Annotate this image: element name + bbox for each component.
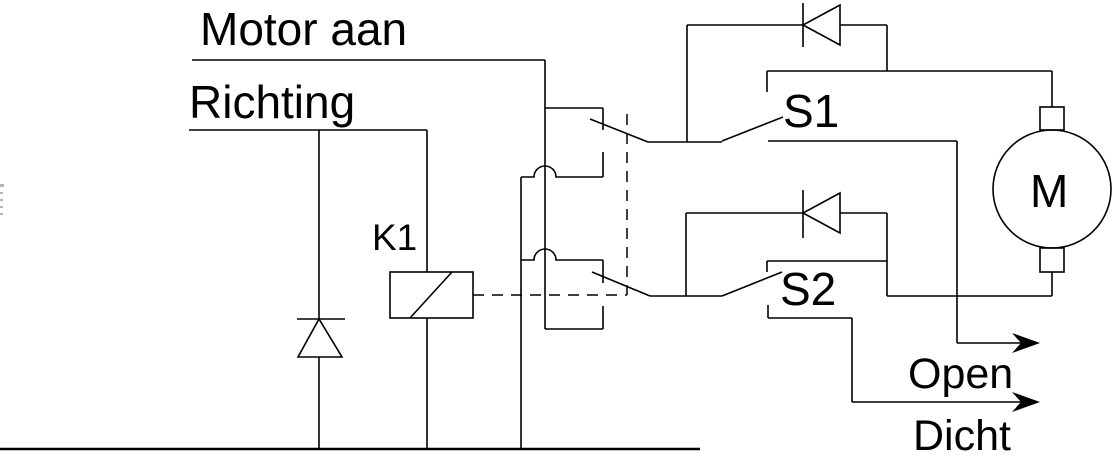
lower-contact-top-wire-hop — [521, 249, 603, 260]
motor-brush-top — [1040, 107, 1064, 130]
changeover-contact-upper — [521, 108, 722, 177]
label-k1: K1 — [372, 217, 417, 258]
label-s2: S2 — [780, 263, 836, 315]
label-open: Open — [908, 350, 1013, 398]
relay-k1-coil — [390, 130, 473, 450]
upper-contact-bottom-wire-hop — [521, 166, 603, 177]
lower-contact-blade — [592, 272, 650, 296]
left-edge-marks — [0, 184, 4, 215]
schematic-canvas: Motor aan Richting K1 S1 S2 M Open Dicht — [0, 0, 1112, 468]
label-motor: M — [1030, 165, 1068, 217]
diode1-icon — [803, 5, 840, 45]
relay-coil-diagonal — [410, 272, 452, 318]
label-dicht: Dicht — [913, 412, 1011, 460]
motor-brush-bottom — [1040, 248, 1064, 272]
freewheel-diode-icon — [298, 319, 342, 357]
mechanical-linkage — [473, 114, 627, 295]
diode2-icon — [803, 193, 840, 233]
label-motor-aan: Motor aan — [200, 3, 407, 55]
open-output — [957, 141, 1040, 353]
dc-motor — [887, 71, 1111, 296]
ground-bus — [0, 177, 700, 450]
circuit-diagram: Motor aan Richting K1 S1 S2 M Open Dicht — [0, 0, 1112, 468]
freewheel-diode-branch — [297, 130, 345, 450]
label-richting: Richting — [189, 76, 355, 128]
s2-blade — [722, 272, 782, 296]
s1-blade — [722, 117, 783, 141]
label-s1: S1 — [783, 85, 839, 137]
changeover-contact-lower — [521, 249, 722, 329]
upper-contact-blade — [590, 119, 648, 142]
limit-switch-s1 — [722, 71, 1052, 141]
